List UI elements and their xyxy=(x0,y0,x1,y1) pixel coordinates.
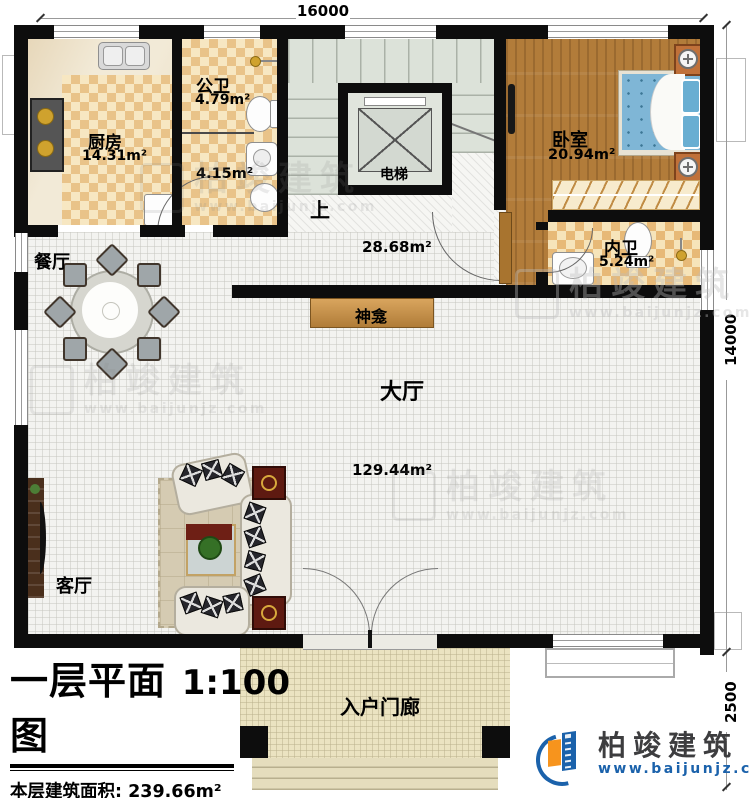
nightstand-lamp xyxy=(678,49,698,69)
wall xyxy=(14,634,303,648)
elevator-door-slit xyxy=(364,97,426,106)
wall xyxy=(437,634,553,648)
bay-window xyxy=(553,634,663,647)
wall xyxy=(232,285,492,298)
title-block: 一层平面图 1:100 本层建筑面积: 239.66m² 本栋建筑面积: 936… xyxy=(10,650,290,798)
logo-building-blue xyxy=(562,731,576,771)
dining-chair xyxy=(63,337,87,361)
window xyxy=(15,233,28,272)
title-rule-thin xyxy=(10,770,234,771)
stairs-up-label: 上 xyxy=(310,194,330,223)
window xyxy=(701,250,714,310)
ensuite-shower-head xyxy=(676,250,687,261)
window xyxy=(548,25,668,38)
hall-label: 大厅 xyxy=(380,374,424,406)
wall xyxy=(663,634,714,648)
side-table-medallion xyxy=(261,605,277,621)
brand-logo: 柏竣建筑 www.baijunjz.com xyxy=(536,726,750,782)
stair-treads-left xyxy=(288,83,338,195)
bed-blanket xyxy=(650,74,685,150)
living-label: 客厅 xyxy=(56,572,92,598)
hall-area: 129.44m² xyxy=(352,461,432,479)
brand-website: www.baijunjz.com xyxy=(598,761,750,777)
wall xyxy=(213,225,288,237)
dim-line-top xyxy=(40,18,704,19)
landing-area: 28.68m² xyxy=(362,238,432,256)
wall xyxy=(14,25,28,233)
dining-table-center xyxy=(102,302,120,320)
title-rule xyxy=(10,764,234,768)
dining-chair xyxy=(137,337,161,361)
cabinet-plant xyxy=(30,484,40,494)
floor-plan: 电梯 xyxy=(0,0,750,798)
porch-pier-right xyxy=(482,726,510,758)
dining-chair xyxy=(137,263,161,287)
wardrobe xyxy=(552,180,700,210)
wall xyxy=(480,285,714,298)
entry-door-post xyxy=(368,630,372,648)
window xyxy=(204,25,260,38)
bedroom-door-leaf xyxy=(499,212,512,284)
wall xyxy=(494,25,506,210)
elevator-shaft-wall xyxy=(338,185,452,195)
window xyxy=(54,25,139,38)
side-table-medallion xyxy=(261,475,277,491)
bay-window-box xyxy=(545,648,675,678)
kitchen-sink-basin xyxy=(103,46,123,66)
plan-title: 一层平面图 xyxy=(10,650,168,760)
stair-treads-right xyxy=(452,83,494,153)
wall xyxy=(172,25,182,232)
stove-burner xyxy=(37,140,54,157)
ensuite-shower-arm xyxy=(680,238,682,250)
wash-basin xyxy=(250,183,279,212)
plan-scale: 1:100 xyxy=(182,663,290,703)
wall xyxy=(548,210,714,222)
washing-machine-door xyxy=(253,149,271,167)
tb-row1-value: 239.66m² xyxy=(128,782,221,798)
dim-porch: 2500 xyxy=(722,672,740,732)
shower-arm xyxy=(259,60,277,62)
bedroom-area: 20.94m² xyxy=(548,147,615,163)
kitchen-area: 14.31m² xyxy=(82,148,147,164)
brand-name: 柏竣建筑 xyxy=(598,731,750,762)
public-bath-area: 4.79m² xyxy=(195,92,250,108)
sofa-cushion xyxy=(222,592,243,613)
elevator-x-box xyxy=(358,108,432,172)
wall xyxy=(700,310,714,655)
wall xyxy=(536,222,548,230)
stove-burner xyxy=(37,108,54,125)
witness-box xyxy=(716,58,746,142)
wall xyxy=(436,25,548,39)
dim-tick xyxy=(722,782,731,791)
elevator-shaft-wall xyxy=(442,83,452,195)
wall xyxy=(260,25,345,39)
elevator-shaft-wall xyxy=(338,83,452,93)
bed-pillow xyxy=(681,79,701,114)
stair-treads-top xyxy=(288,39,494,83)
wall-tv xyxy=(508,84,515,134)
witness-box xyxy=(714,612,742,650)
shrine-label: 神龛 xyxy=(310,303,432,327)
elevator-label: 电梯 xyxy=(362,164,426,184)
logo-building-orange xyxy=(548,739,561,767)
ensuite-area: 5.24m² xyxy=(599,254,654,270)
wall xyxy=(14,272,28,330)
window xyxy=(15,330,28,425)
wall xyxy=(277,25,288,232)
window xyxy=(345,25,436,38)
shower-head xyxy=(250,56,261,67)
dim-right: 14000 xyxy=(722,300,740,380)
bath-partition xyxy=(182,132,254,134)
table-plant xyxy=(198,536,222,560)
brand-logo-icon xyxy=(536,726,588,782)
dim-top: 16000 xyxy=(296,2,350,20)
dining-label: 餐厅 xyxy=(34,248,70,274)
nightstand-lamp xyxy=(678,157,698,177)
kitchen-sink-basin xyxy=(125,46,145,66)
wall xyxy=(14,425,28,648)
bed-pillow xyxy=(681,114,701,149)
elevator-shaft-wall xyxy=(338,83,348,195)
dim-tick xyxy=(699,13,708,22)
utility-bath-area: 4.15m² xyxy=(196,166,253,182)
wall xyxy=(140,225,185,237)
tb-row1-label: 本层建筑面积: xyxy=(10,782,122,798)
porch-label: 入户门廊 xyxy=(340,691,420,720)
